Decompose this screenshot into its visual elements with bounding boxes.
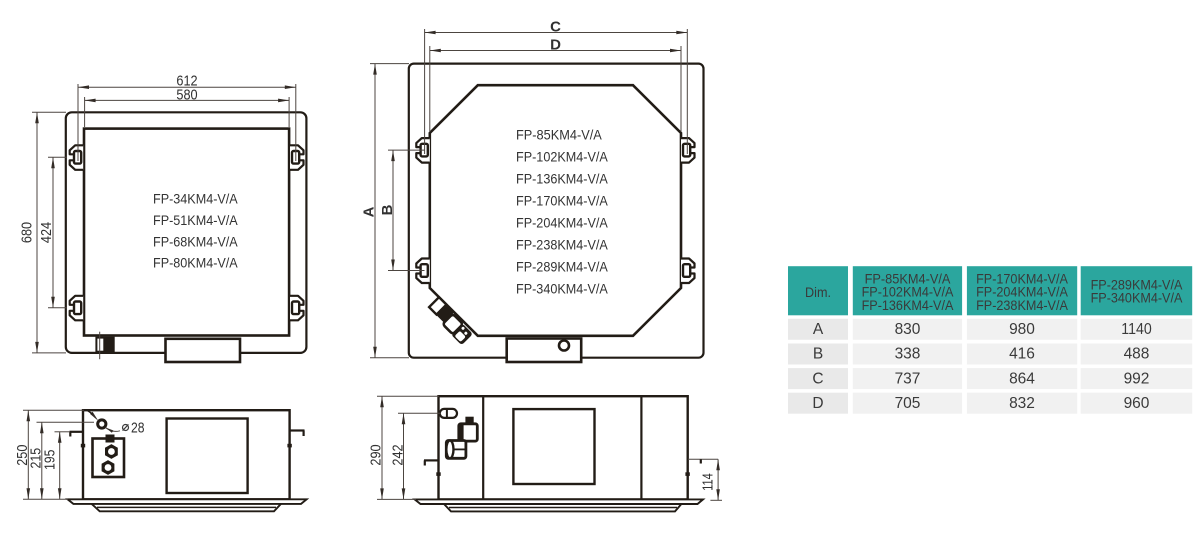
svg-text:980: 980 [1009, 321, 1035, 338]
svg-text:C: C [812, 370, 823, 387]
svg-text:FP-85KM4-V/A: FP-85KM4-V/A [516, 127, 602, 143]
svg-text:FP-340KM4-V/A: FP-340KM4-V/A [516, 281, 608, 297]
svg-text:832: 832 [1009, 395, 1035, 412]
svg-text:FP-136KM4-V/A: FP-136KM4-V/A [862, 298, 954, 313]
svg-text:B: B [379, 204, 396, 215]
svg-text:680: 680 [19, 222, 36, 243]
svg-text:FP-51KM4-V/A: FP-51KM4-V/A [153, 212, 238, 228]
svg-text:705: 705 [895, 395, 921, 412]
svg-text:424: 424 [38, 222, 55, 243]
svg-text:A: A [813, 321, 824, 338]
svg-text:114: 114 [700, 473, 717, 491]
svg-text:FP-136KM4-V/A: FP-136KM4-V/A [516, 171, 608, 187]
svg-text:960: 960 [1124, 395, 1150, 412]
svg-text:1140: 1140 [1121, 321, 1152, 338]
svg-text:FP-238KM4-V/A: FP-238KM4-V/A [516, 237, 608, 253]
svg-text:FP-340KM4-V/A: FP-340KM4-V/A [1091, 291, 1183, 306]
svg-text:195: 195 [41, 450, 58, 470]
svg-text:Dim.: Dim. [805, 284, 831, 300]
svg-text:242: 242 [389, 444, 406, 465]
svg-text:FP-80KM4-V/A: FP-80KM4-V/A [153, 255, 238, 271]
svg-text:416: 416 [1009, 346, 1035, 363]
svg-text:FP-68KM4-V/A: FP-68KM4-V/A [153, 233, 238, 249]
svg-text:28: 28 [131, 420, 145, 437]
svg-text:488: 488 [1124, 346, 1150, 363]
svg-text:D: D [550, 37, 561, 54]
svg-text:B: B [813, 346, 823, 363]
svg-text:FP-102KM4-V/A: FP-102KM4-V/A [516, 149, 608, 165]
svg-text:A: A [361, 206, 378, 217]
svg-text:FP-204KM4-V/A: FP-204KM4-V/A [516, 215, 608, 231]
svg-text:992: 992 [1124, 370, 1150, 387]
svg-text:830: 830 [895, 321, 921, 338]
svg-text:FP-289KM4-V/A: FP-289KM4-V/A [516, 259, 608, 275]
svg-text:737: 737 [895, 370, 921, 387]
svg-text:864: 864 [1009, 370, 1035, 387]
svg-text:FP-170KM4-V/A: FP-170KM4-V/A [516, 193, 608, 209]
svg-text:580: 580 [176, 86, 197, 103]
svg-text:338: 338 [895, 346, 921, 363]
svg-text:C: C [550, 18, 561, 35]
svg-text:290: 290 [368, 444, 385, 465]
svg-text:FP-238KM4-V/A: FP-238KM4-V/A [976, 298, 1068, 313]
svg-text:FP-34KM4-V/A: FP-34KM4-V/A [153, 191, 238, 207]
svg-text:D: D [812, 395, 823, 412]
